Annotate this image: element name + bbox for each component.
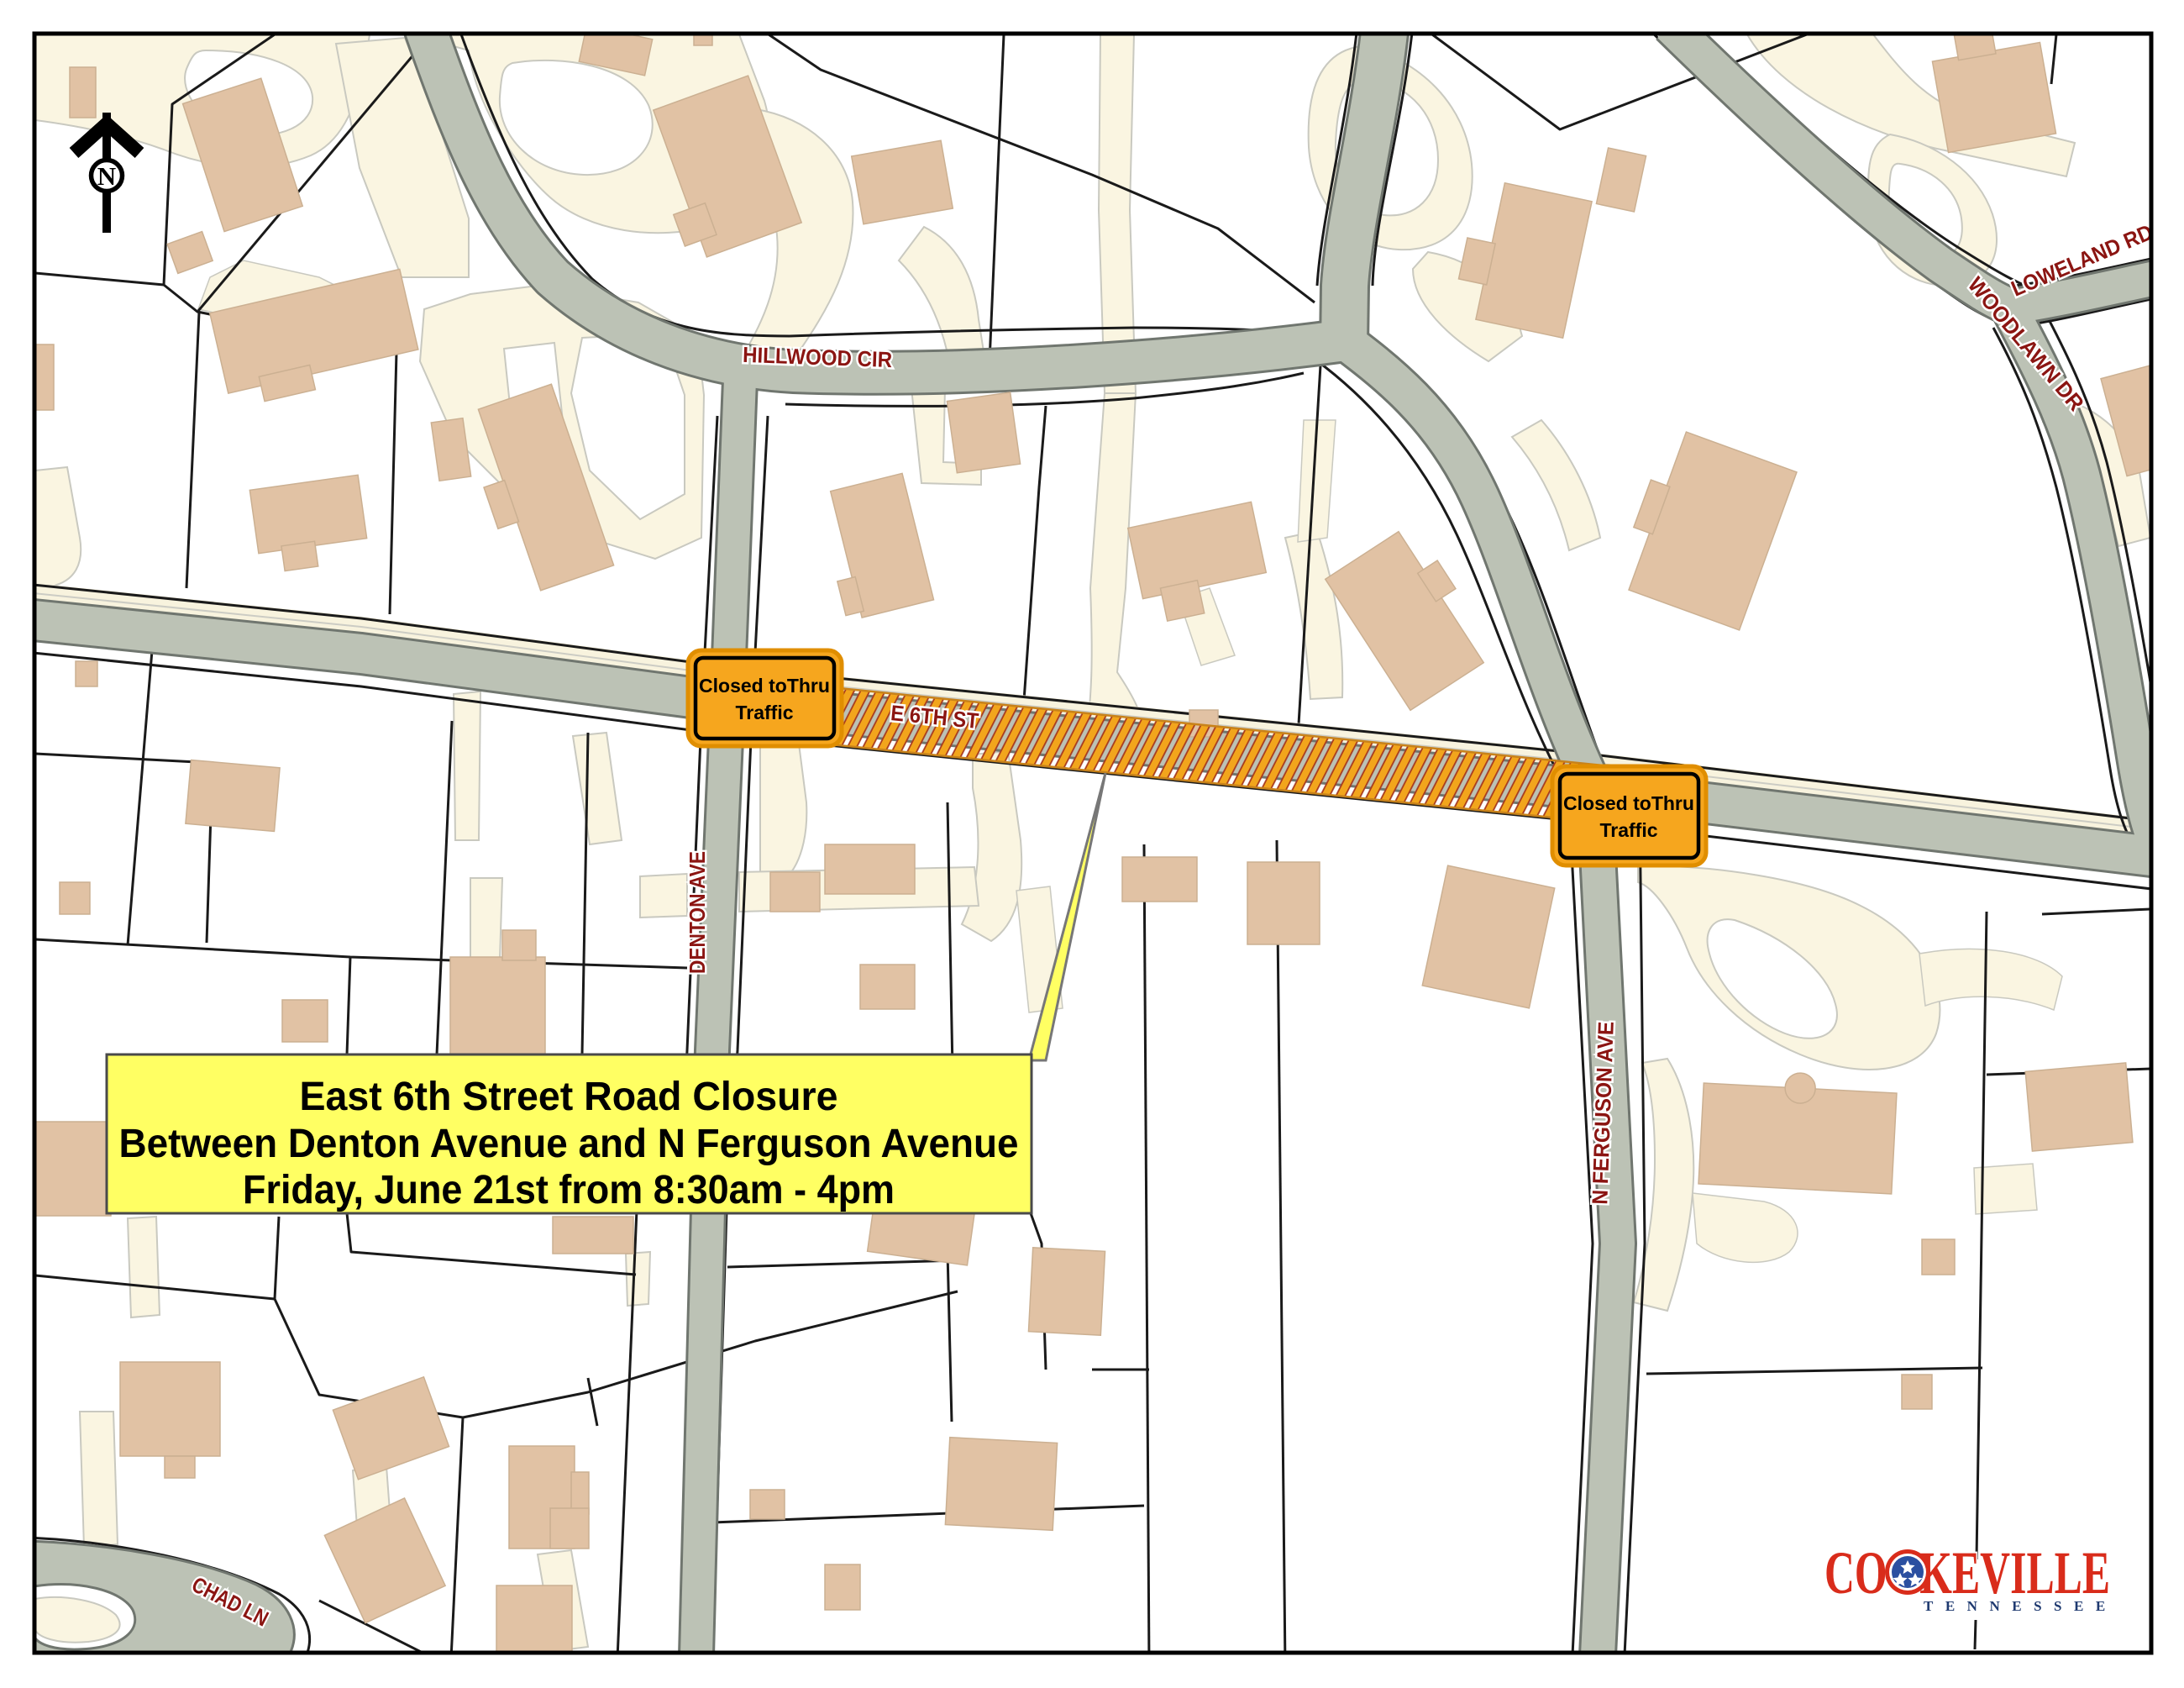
svg-text:Friday, June 21st from 8:30am: Friday, June 21st from 8:30am - 4pm [243,1168,895,1212]
svg-text:Between Denton Avenue and N Fe: Between Denton Avenue and N Ferguson Ave… [119,1122,1019,1166]
svg-text:TENNESSEE: TENNESSEE [1924,1598,2118,1614]
svg-text:COOKEVILLE: COOKEVILLE [1824,1539,2110,1606]
svg-text:HILLWOOD CIR: HILLWOOD CIR [743,342,893,372]
svg-text:Traffic: Traffic [1599,819,1657,841]
svg-text:Closed toThru: Closed toThru [1563,792,1694,814]
svg-text:East 6th Street Road Closure: East 6th Street Road Closure [300,1075,838,1119]
svg-text:Traffic: Traffic [735,702,793,723]
svg-text:N: N [97,161,116,191]
svg-text:DENTON AVE: DENTON AVE [685,851,710,974]
svg-text:Closed toThru: Closed toThru [699,675,830,697]
